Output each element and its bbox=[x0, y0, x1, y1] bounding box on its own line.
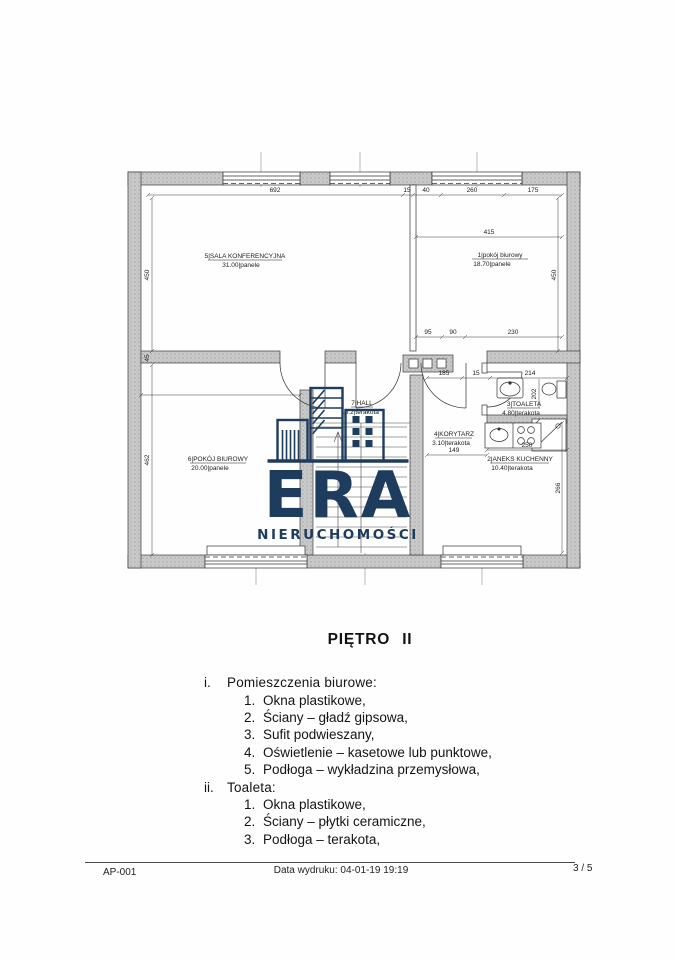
dim-label: 149 bbox=[449, 447, 460, 454]
item-number: 1. bbox=[244, 797, 263, 812]
room-label: 3|TOALETA bbox=[507, 401, 542, 408]
list-item: 3. Podłoga – terakota, bbox=[244, 831, 624, 848]
section-title: Toaleta: bbox=[227, 780, 276, 795]
item-number: 3. bbox=[244, 832, 263, 847]
page-title: PIĘTRO II bbox=[328, 631, 413, 649]
list-item: 4. Oświetlenie – kasetowe lub punktowe, bbox=[244, 744, 624, 761]
dim-label: 175 bbox=[528, 187, 539, 194]
item-text: Oświetlenie – kasetowe lub punktowe, bbox=[263, 745, 492, 760]
room-label: 2|ANEKS KUCHENNY bbox=[487, 456, 553, 463]
dim-label: 214 bbox=[525, 370, 536, 377]
item-text: Ściany – gładź gipsowa, bbox=[263, 710, 408, 725]
item-number: 3. bbox=[244, 727, 263, 742]
window-icon bbox=[441, 555, 523, 568]
item-number: 4. bbox=[244, 745, 263, 760]
dim-label: 185 bbox=[439, 370, 450, 377]
item-text: Ściany – płytki ceramiczne, bbox=[263, 814, 426, 829]
list-item: 1. Okna plastikowe, bbox=[244, 796, 624, 813]
dim-label: 692 bbox=[270, 187, 281, 194]
room-area-label: 31.00|panele bbox=[222, 262, 260, 269]
list-item: 1. Okna plastikowe, bbox=[244, 691, 624, 708]
toilet-tank bbox=[557, 381, 566, 398]
window-sills bbox=[207, 546, 521, 555]
dim-label: 462 bbox=[144, 454, 151, 465]
dim-label: 15 bbox=[472, 370, 480, 377]
window-icon bbox=[330, 172, 390, 185]
dim-label: 202 bbox=[531, 388, 538, 399]
section-marker: ii. bbox=[204, 780, 227, 795]
era-logo-subtitle: NIERUCHOMOŚCI bbox=[252, 527, 424, 543]
window-icon bbox=[223, 172, 300, 185]
dim-label: 230 bbox=[508, 329, 519, 336]
item-number: 1. bbox=[244, 693, 263, 708]
item-number: 2. bbox=[244, 814, 263, 829]
window-icon bbox=[432, 172, 522, 185]
room-label: 6|POKÓJ BIUROWY bbox=[188, 454, 249, 463]
item-text: Sufit podwieszany, bbox=[263, 727, 375, 742]
era-buildings-icon bbox=[263, 384, 413, 464]
dim-label: 15 bbox=[403, 187, 411, 194]
footer-page-number: 3 / 5 bbox=[573, 863, 592, 874]
toilet-icon bbox=[542, 383, 556, 395]
era-logo-title: ERA bbox=[252, 467, 424, 526]
room-area-label: 10.40|terakota bbox=[491, 465, 533, 472]
section-marker: i. bbox=[204, 675, 227, 690]
list-item: 2. Ściany – gładź gipsowa, bbox=[244, 709, 624, 726]
dim-label: 450 bbox=[551, 269, 558, 280]
dim-label: 266 bbox=[555, 482, 562, 493]
era-logo: ERA NIERUCHOMOŚCI bbox=[252, 384, 424, 543]
list-item: 3. Sufit podwieszany, bbox=[244, 726, 624, 743]
item-text: Okna plastikowe, bbox=[263, 797, 366, 812]
room-label: 4|KORYTARZ bbox=[434, 431, 474, 438]
footer-doc-id: AP-001 bbox=[103, 867, 136, 878]
room-label: 1|pokój biurowy bbox=[477, 252, 523, 259]
item-number: 2. bbox=[244, 710, 263, 725]
room-area-label: 20.00|panele bbox=[191, 465, 229, 472]
scanned-document-page: 692 15 40 260 175 415 95 90 230 185 15 2… bbox=[0, 0, 675, 960]
footer-divider bbox=[85, 862, 575, 863]
item-text: Okna plastikowe, bbox=[263, 693, 366, 708]
section-header: ii. Toaleta: bbox=[204, 778, 624, 795]
dim-label: 45 bbox=[144, 354, 151, 362]
room-label: 5|SALA KONFERENCYJNA bbox=[205, 253, 286, 260]
specifications-list: i. Pomieszczenia biurowe: 1. Okna plasti… bbox=[204, 674, 624, 848]
list-item: 2. Ściany – płytki ceramiczne, bbox=[244, 813, 624, 830]
room-area-label: 18.70|panele bbox=[473, 261, 511, 268]
window-icon bbox=[205, 555, 307, 568]
dim-label: 95 bbox=[424, 329, 432, 336]
dim-label: 415 bbox=[484, 229, 495, 236]
item-text: Podłoga – wykładzina przemysłowa, bbox=[263, 762, 480, 777]
dim-label: 250 bbox=[522, 442, 533, 449]
room-area-label: 4.80|terakota bbox=[502, 410, 540, 417]
dim-label: 90 bbox=[449, 329, 457, 336]
section-header: i. Pomieszczenia biurowe: bbox=[204, 674, 624, 691]
dim-label: 40 bbox=[422, 187, 430, 194]
dim-label: 260 bbox=[467, 187, 478, 194]
dim-label: 450 bbox=[144, 269, 151, 280]
list-item: 5. Podłoga – wykładzina przemysłowa, bbox=[244, 761, 624, 778]
item-text: Podłoga – terakota, bbox=[263, 832, 380, 847]
glass-block-wall bbox=[409, 359, 446, 368]
item-number: 5. bbox=[244, 762, 263, 777]
room-area-label: 3.10|terakota bbox=[432, 440, 470, 447]
footer-print-date: Data wydruku: 04-01-19 19:19 bbox=[274, 865, 409, 876]
section-title: Pomieszczenia biurowe: bbox=[227, 675, 377, 690]
